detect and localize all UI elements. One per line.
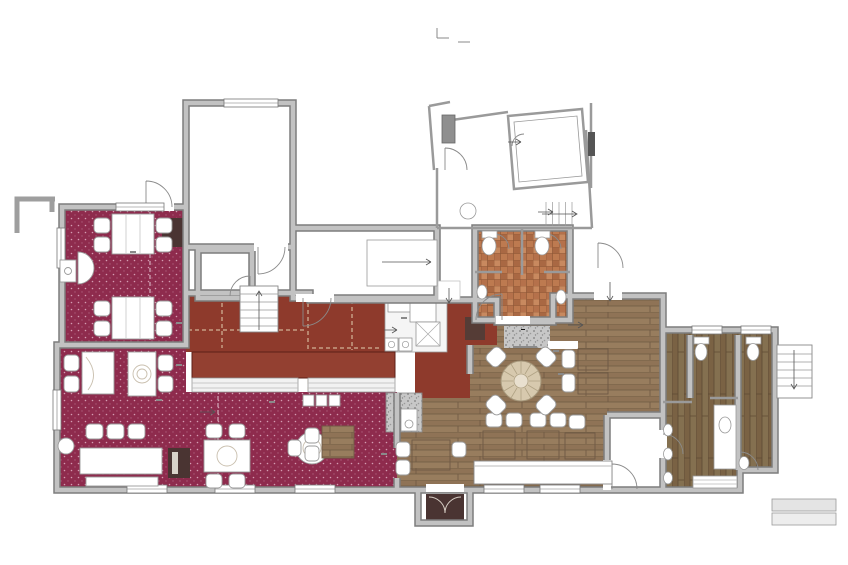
- up-165-lounge-label: [553, 350, 559, 352]
- bar-servery: [385, 300, 447, 352]
- outbuilding-wall-block-2: [588, 132, 595, 156]
- up-250-label: [401, 317, 407, 319]
- restaurant-rear-label: [130, 251, 136, 253]
- lounge-label: [558, 373, 564, 375]
- tv-label: [513, 346, 537, 348]
- bar-counter: [192, 352, 395, 392]
- freezer-inner: [514, 116, 582, 182]
- outbuilding-wall-block: [442, 115, 455, 143]
- up-110-rear-label: [176, 322, 182, 324]
- exterior-steps: [772, 499, 836, 525]
- floor-plan-svg: [0, 0, 848, 565]
- break-marks: [437, 28, 470, 42]
- restaurant-label: [156, 399, 162, 401]
- pub-floor-plan: [0, 0, 848, 565]
- up-120-label: [176, 364, 182, 366]
- open-hearth-label: [521, 329, 525, 330]
- bar-covers-label: [269, 401, 275, 403]
- left-yard-wall: [17, 199, 55, 233]
- up-285-label: [381, 453, 387, 455]
